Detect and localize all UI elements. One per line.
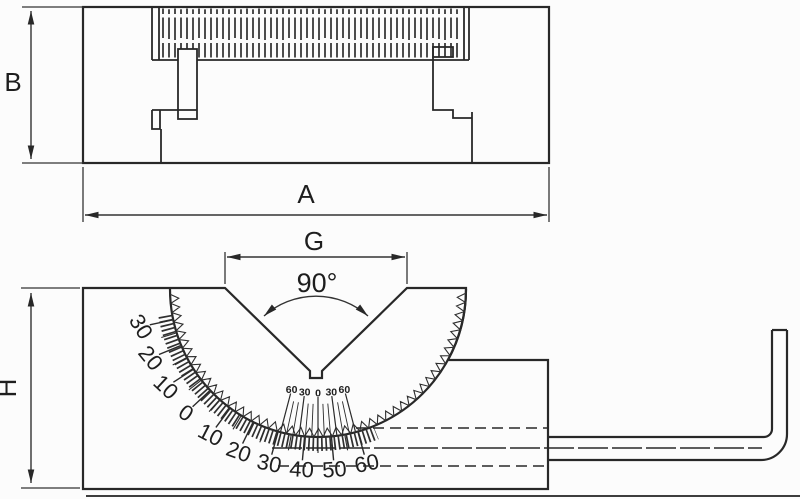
knurl-hatch	[163, 9, 457, 58]
dim-label-G: G	[304, 226, 324, 256]
vernier-label: 60	[286, 384, 298, 396]
protractor-scale-label: 30	[124, 310, 158, 344]
vernier-tick	[323, 404, 324, 436]
angle-block-drawing: B A 3020100102030405060 603003060	[0, 0, 800, 499]
protractor-scale-labels: 3020100102030405060	[124, 310, 381, 483]
groove-angle-annotation: 90°	[264, 268, 368, 316]
vernier-label: 60	[339, 384, 351, 396]
technical-drawing-sheet: B A 3020100102030405060 603003060	[0, 0, 800, 499]
vernier-tick	[338, 402, 343, 434]
protractor-scale-label: 10	[194, 418, 227, 451]
protractor-scale-label: 50	[321, 456, 347, 483]
protractor-graduations	[165, 316, 376, 444]
dimension-A: A	[83, 167, 549, 222]
left-jaw	[152, 49, 197, 163]
groove-angle-label: 90°	[297, 268, 338, 298]
front-view: 3020100102030405060 603003060	[83, 288, 787, 489]
vernier-tick	[281, 394, 291, 432]
vernier-tick	[312, 404, 313, 436]
protractor-scale-label: 0	[174, 399, 198, 426]
hex-key	[548, 330, 787, 460]
vernier-tick	[345, 394, 355, 432]
protractor-scale-label: 20	[223, 436, 254, 468]
protractor-scale-label: 20	[133, 341, 168, 376]
vernier-tick	[293, 402, 298, 434]
protractor-scale-label: 60	[352, 449, 381, 478]
vernier-tick	[332, 396, 337, 435]
dim-label-B: B	[4, 67, 21, 97]
dim-label-A: A	[297, 179, 315, 209]
dimension-H: H	[0, 288, 80, 488]
protractor-scale-label: 10	[148, 370, 183, 405]
serrated-strip	[152, 7, 469, 60]
dim-label-H: H	[0, 379, 22, 398]
right-jaw	[433, 47, 472, 163]
protractor-scale-label: 40	[289, 456, 315, 483]
protractor-minor-tick	[260, 428, 265, 442]
vernier-label: 30	[325, 387, 337, 399]
protractor-scale-label: 30	[255, 449, 284, 478]
vernier-label: 0	[315, 388, 321, 400]
dimension-B: B	[4, 7, 83, 163]
top-view	[83, 7, 549, 163]
vernier-label: 30	[299, 387, 311, 399]
